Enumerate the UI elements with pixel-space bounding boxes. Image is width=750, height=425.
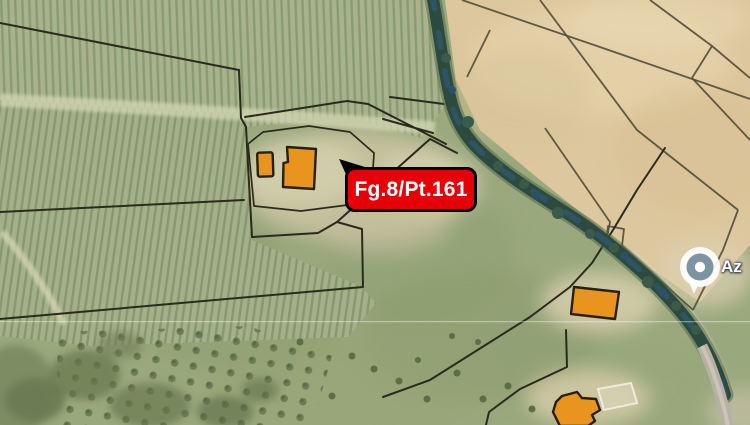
satellite-imagery: [0, 0, 750, 425]
map-viewport[interactable]: Fg.8/Pt.161 Az: [0, 0, 750, 425]
parcel-label-text: Fg.8/Pt.161: [354, 178, 467, 202]
poi-marker[interactable]: [678, 246, 722, 298]
building-footprint: [283, 147, 316, 189]
poi-label: Az: [721, 257, 742, 277]
tile-seam: [0, 321, 750, 322]
building-footprint: [257, 152, 273, 177]
location-pin-icon: [678, 246, 722, 298]
building-footprint: [571, 287, 619, 319]
parcel-label[interactable]: Fg.8/Pt.161: [345, 167, 477, 212]
